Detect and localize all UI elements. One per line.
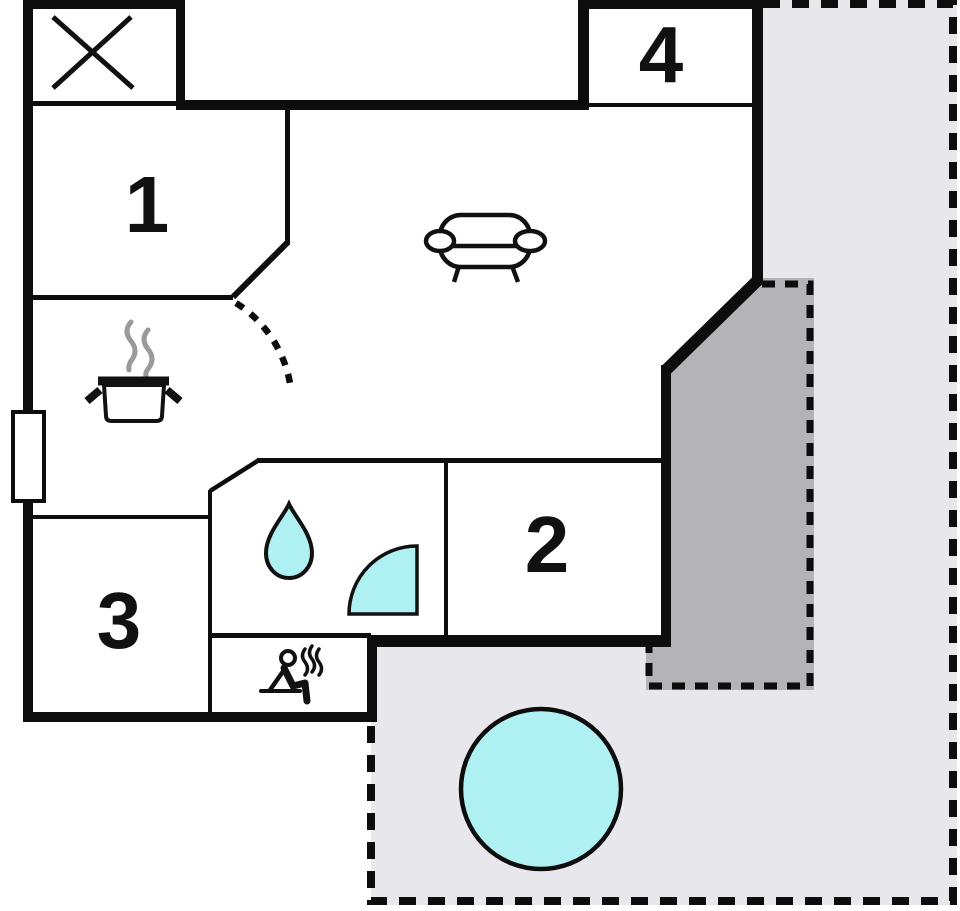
wall-xbox-right (176, 0, 185, 110)
wall-bath-room2-divider (444, 458, 448, 635)
wall-room4-bottom (589, 103, 752, 107)
wall-room1-right (285, 108, 290, 245)
wall-right-lower (661, 365, 671, 647)
room-2-label: 2 (525, 500, 570, 589)
floor-plan: 1 2 3 4 (0, 0, 960, 911)
wall-bath-left (208, 490, 212, 712)
wall-room4-top (578, 0, 763, 9)
window-symbol (13, 412, 44, 501)
wall-xbox-top (23, 0, 185, 9)
wall-bottom (23, 712, 377, 722)
pot-body (104, 385, 164, 421)
wall-room4-left (578, 0, 589, 110)
wall-top-recessed (181, 100, 589, 110)
wall-bath-sauna-divider (212, 633, 371, 638)
room-3-label: 3 (97, 576, 142, 665)
room-1-label: 1 (125, 160, 170, 249)
wall-living-south (257, 458, 666, 463)
wall-sauna-right (367, 635, 377, 722)
wall-room1-bottom (33, 295, 233, 300)
wall-xbox-bottom (27, 101, 180, 106)
wall-room3-top (33, 515, 211, 519)
wall-south-room2 (371, 635, 671, 647)
wall-right-upper (752, 0, 763, 285)
room-4-label: 4 (639, 10, 684, 99)
wall-left (23, 0, 33, 722)
round-pool (461, 709, 621, 869)
